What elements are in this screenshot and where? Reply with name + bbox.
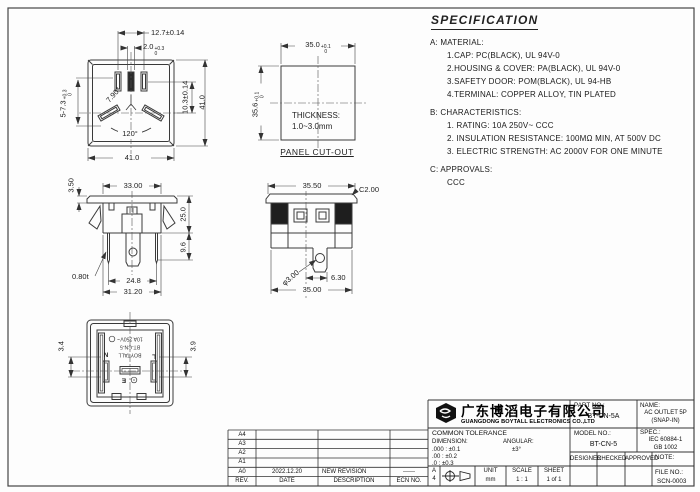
name-value-line1: AC OUTLET 5P [637,410,694,417]
revision-row-rev: A0 [228,469,256,476]
revision-row-rev: A4 [228,432,256,439]
file-no-label: FILE NO.: [655,469,683,476]
sheet-label: SHEET [538,468,570,475]
side-dim-pin-span: 24.8 [120,277,147,286]
cutout-dim-width: 35.0+0.10 [295,41,341,54]
revision-row-rev: A3 [228,441,256,448]
front-dim-slot-length: 5-7.3+0.30 [60,82,73,126]
sheet-size-letter: A [428,468,440,475]
spec-approvals-item-1: CCC [447,178,465,187]
model-no-label: MODEL NO.: [574,430,611,437]
revision-row-description: NEW REVISION [322,469,366,476]
tolerance-row-1: .000 : ±0.1 [432,447,460,454]
side-dim-pin-height: 9.6 [180,237,189,257]
spec-material-item-2: 2.HOUSING & COVER: PA(BLACK), UL 94V-0 [447,64,620,73]
side-dim-top-width: 33.00 [117,182,149,191]
scale-value: 1 : 1 [506,477,538,484]
front-dim-row-gap: 10.3±0.14 [182,75,191,119]
company-logo-icon [436,403,456,423]
sheet-value: 1 of 1 [538,477,570,484]
unit-value: mm [475,477,506,484]
revision-header-date: DATE [256,478,318,485]
back-dim-left: 3.4 [58,334,67,358]
side-dim-body-width: 31.20 [117,288,149,297]
spec-no-value-line2: GB 1002 [637,445,694,452]
side2-dim-hole-offset: 6.30 [331,274,346,283]
tolerance-row-3: .0 : ±0.3 [432,461,454,468]
revision-row-rev: A1 [228,459,256,466]
cutout-thickness-value: 1.0~3.0mm [292,122,332,131]
checked-label: CHECKED [597,456,625,463]
side2-dim-flange-width: 35.50 [296,182,328,191]
part-no-value: BT-CN-5A [570,413,637,421]
revision-row-rev: A2 [228,450,256,457]
spec-characteristics-item-2: 2. INSULATION RESISTANCE: 100MΩ MIN, AT … [447,134,661,143]
front-dim-height: 41.0 [199,90,208,114]
back-terminal-e-label: E [119,376,129,383]
revision-header-ecn: ECN NO. [390,478,428,485]
name-label: NAME: [640,402,660,409]
spec-no-label: SPEC.: [640,429,661,436]
back-view-centerlines [72,312,188,414]
scale-label: SCALE [506,468,538,475]
designer-label: DESIGNER [570,456,597,463]
front-dim-angle-arc: 120° [118,130,142,139]
revision-row-ecn: ------ [390,469,428,476]
back-dim-right: 3.9 [190,334,199,358]
engineering-drawing-sheet: 12.7±0.14 2.0+0.30 5-7.3+0.30 7.90° 120°… [0,0,700,492]
spec-characteristics-heading: B: CHARACTERISTICS: [430,108,521,117]
side-dim-flange-thickness: 3.50 [68,173,77,197]
side-dim-body-height: 25.0 [180,202,189,226]
tolerance-row-2: .00 : ±0.2 [432,454,457,461]
part-no-label: PART NO.: [574,402,605,409]
back-marking-text: BOYTALL BT-CN-5 10A 250V~ [106,334,154,357]
sheet-size-number: 4 [428,476,440,483]
cutout-title: PANEL CUT-OUT [275,148,359,158]
tolerance-title: COMMON TOLERANCE [432,430,507,438]
spec-material-item-3: 3.SAFETY DOOR: POM(BLACK), UL 94-HB [447,77,611,86]
revision-header-description: DESCRIPTION [318,478,390,485]
side-dim-pin-thickness: 0.80t [72,273,89,282]
revision-header-rev: REV. [228,478,256,485]
panel-cutout-centerlines [270,56,366,150]
angular-label: ANGULAR: [503,439,534,446]
spec-no-value-line1: IEC 60884-1 [637,437,694,444]
front-dim-slot-width: 2.0+0.30 [143,43,164,56]
spec-material-heading: A: MATERIAL: [430,38,484,47]
front-dim-pin-pitch: 12.7±0.14 [151,29,184,38]
spec-approvals-heading: C: APPROVALS: [430,165,492,174]
side2-dim-body-width: 35.00 [296,286,328,295]
revision-row-date: 2022.12.20 [256,469,318,476]
projection-symbol-icon [442,470,470,482]
note-label: NOTE: [655,454,674,461]
side-view2-drawing [266,194,357,272]
spec-characteristics-item-3: 3. ELECTRIC STRENGTH: AC 2000V FOR ONE M… [447,147,663,156]
approved-label: APPROVED [625,456,652,463]
side2-dim-chamfer: C2.00 [359,186,379,195]
name-value-line2: (SNAP-IN) [637,418,694,425]
spec-material-item-4: 4.TERMINAL: COPPER ALLOY, TIN PLATED [447,90,616,99]
cutout-dim-height: 35.6+0.10 [252,84,265,126]
unit-label: UNIT [475,468,506,475]
spec-material-item-1: 1.CAP: PC(BLACK), UL 94V-0 [447,51,560,60]
file-no-value: SCN-0003 [657,478,686,485]
model-no-value: BT-CN-5 [570,441,637,449]
spec-characteristics-item-1: 1. RATING: 10A 250V~ CCC [447,121,554,130]
front-dim-width: 41.0 [113,154,151,163]
dimension-label: DIMENSION: [432,439,468,446]
cutout-thickness-label: THICKNESS: [292,111,340,120]
spec-title: SPECIFICATION [431,14,538,30]
angular-value: ±3° [512,447,521,454]
